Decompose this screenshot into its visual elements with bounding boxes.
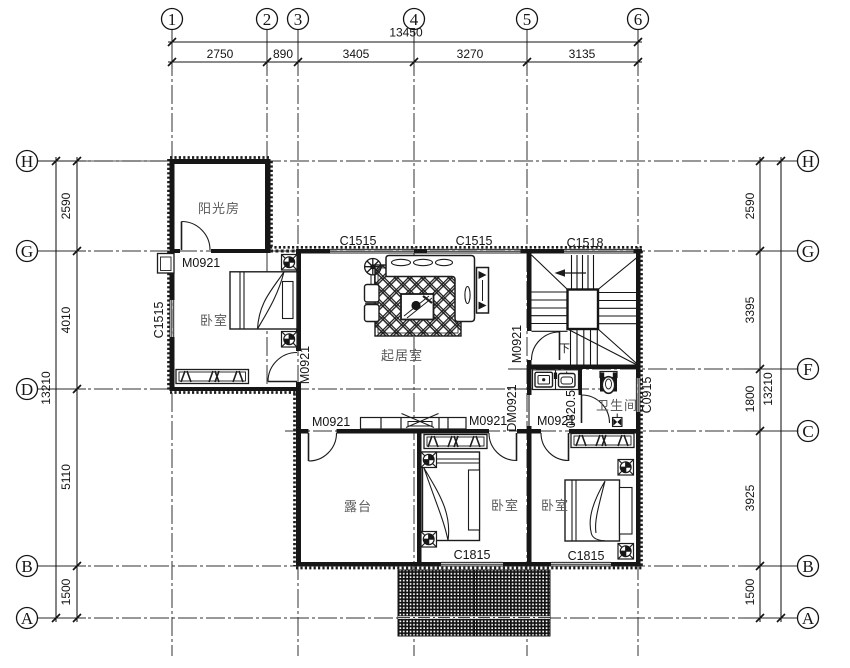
svg-text:C: C bbox=[802, 422, 813, 441]
svg-text:B: B bbox=[21, 557, 32, 576]
svg-text:C1515: C1515 bbox=[456, 234, 493, 248]
svg-text:6: 6 bbox=[634, 10, 643, 29]
svg-text:DM0921: DM0921 bbox=[505, 384, 519, 431]
svg-text:C1815: C1815 bbox=[568, 549, 605, 563]
svg-text:3: 3 bbox=[294, 10, 303, 29]
svg-text:C0915: C0915 bbox=[640, 377, 654, 414]
svg-text:C1518: C1518 bbox=[567, 236, 604, 250]
svg-text:卫生间: 卫生间 bbox=[596, 398, 638, 413]
svg-text:2: 2 bbox=[263, 10, 272, 29]
svg-text:3270: 3270 bbox=[457, 47, 484, 61]
svg-text:F: F bbox=[803, 360, 812, 379]
svg-text:3925: 3925 bbox=[743, 484, 757, 511]
svg-text:H: H bbox=[21, 152, 33, 171]
svg-text:D: D bbox=[21, 380, 33, 399]
svg-text:露台: 露台 bbox=[344, 499, 372, 514]
svg-text:卧室: 卧室 bbox=[200, 313, 228, 328]
svg-text:5: 5 bbox=[523, 10, 532, 29]
svg-text:卧室: 卧室 bbox=[491, 498, 519, 513]
svg-text:3135: 3135 bbox=[569, 47, 596, 61]
svg-text:1500: 1500 bbox=[743, 578, 757, 605]
svg-text:3395: 3395 bbox=[743, 296, 757, 323]
svg-text:C1515: C1515 bbox=[152, 302, 166, 339]
svg-text:13210: 13210 bbox=[761, 372, 775, 406]
svg-text:阳光房: 阳光房 bbox=[198, 201, 240, 216]
svg-text:G: G bbox=[21, 242, 33, 261]
svg-text:1: 1 bbox=[168, 10, 177, 29]
svg-text:A: A bbox=[21, 609, 34, 628]
svg-text:4010: 4010 bbox=[59, 306, 73, 333]
svg-text:G: G bbox=[802, 242, 814, 261]
svg-text:3405: 3405 bbox=[343, 47, 370, 61]
svg-text:起居室: 起居室 bbox=[381, 348, 423, 363]
svg-text:M0921: M0921 bbox=[182, 256, 220, 270]
svg-text:下: 下 bbox=[559, 343, 570, 355]
svg-text:2750: 2750 bbox=[207, 47, 234, 61]
svg-text:卧室: 卧室 bbox=[541, 498, 569, 513]
svg-text:M0921: M0921 bbox=[298, 346, 312, 384]
svg-text:0820.5: 0820.5 bbox=[564, 390, 578, 428]
svg-text:B: B bbox=[802, 557, 813, 576]
svg-text:1500: 1500 bbox=[59, 578, 73, 605]
svg-text:C1815: C1815 bbox=[454, 548, 491, 562]
svg-text:2590: 2590 bbox=[59, 192, 73, 219]
svg-text:M0921: M0921 bbox=[469, 414, 507, 428]
svg-text:13210: 13210 bbox=[39, 371, 53, 405]
svg-text:2590: 2590 bbox=[743, 192, 757, 219]
svg-text:M0921: M0921 bbox=[312, 415, 350, 429]
svg-text:890: 890 bbox=[273, 47, 293, 61]
svg-text:1800: 1800 bbox=[743, 385, 757, 412]
svg-text:C1515: C1515 bbox=[340, 234, 377, 248]
svg-text:4: 4 bbox=[410, 10, 419, 29]
svg-text:5110: 5110 bbox=[59, 464, 73, 490]
svg-text:A: A bbox=[802, 609, 815, 628]
svg-text:H: H bbox=[802, 152, 814, 171]
svg-text:M0921: M0921 bbox=[510, 325, 524, 363]
